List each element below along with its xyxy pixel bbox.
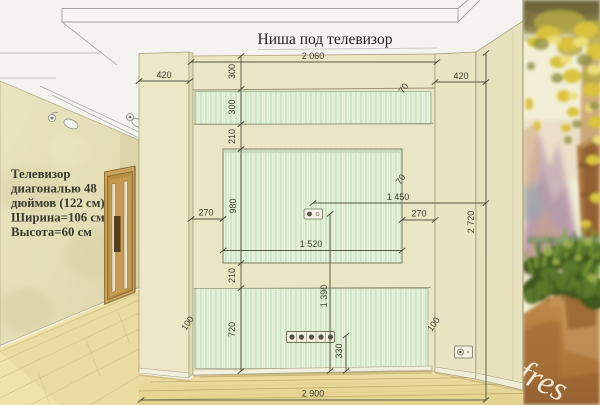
svg-text:Ширина=106 см: Ширина=106 см — [11, 211, 105, 225]
svg-text:270: 270 — [198, 208, 213, 218]
svg-text:1 390: 1 390 — [319, 285, 329, 308]
svg-text:Телевизор: Телевизор — [11, 167, 70, 181]
svg-text:330: 330 — [334, 343, 344, 358]
svg-text:420: 420 — [156, 70, 171, 80]
svg-text:270: 270 — [411, 209, 426, 219]
svg-text:210: 210 — [227, 129, 237, 144]
svg-text:2 900: 2 900 — [302, 389, 325, 399]
svg-text:980: 980 — [228, 198, 238, 213]
svg-text:Ниша под телевизор: Ниша под телевизор — [258, 31, 393, 48]
svg-text:1 520: 1 520 — [300, 239, 323, 249]
svg-text:диагональю 48: диагональю 48 — [11, 182, 97, 196]
svg-text:300: 300 — [227, 99, 237, 114]
svg-text:420: 420 — [453, 71, 468, 81]
svg-text:300: 300 — [227, 64, 237, 79]
svg-text:720: 720 — [227, 322, 237, 337]
svg-text:дюймов (122 см): дюймов (122 см) — [11, 196, 105, 210]
svg-text:1 450: 1 450 — [387, 192, 410, 202]
svg-text:Высота=60 см: Высота=60 см — [11, 225, 92, 239]
svg-text:2 720: 2 720 — [466, 211, 476, 234]
svg-text:210: 210 — [227, 268, 237, 283]
svg-text:2 060: 2 060 — [302, 51, 325, 61]
